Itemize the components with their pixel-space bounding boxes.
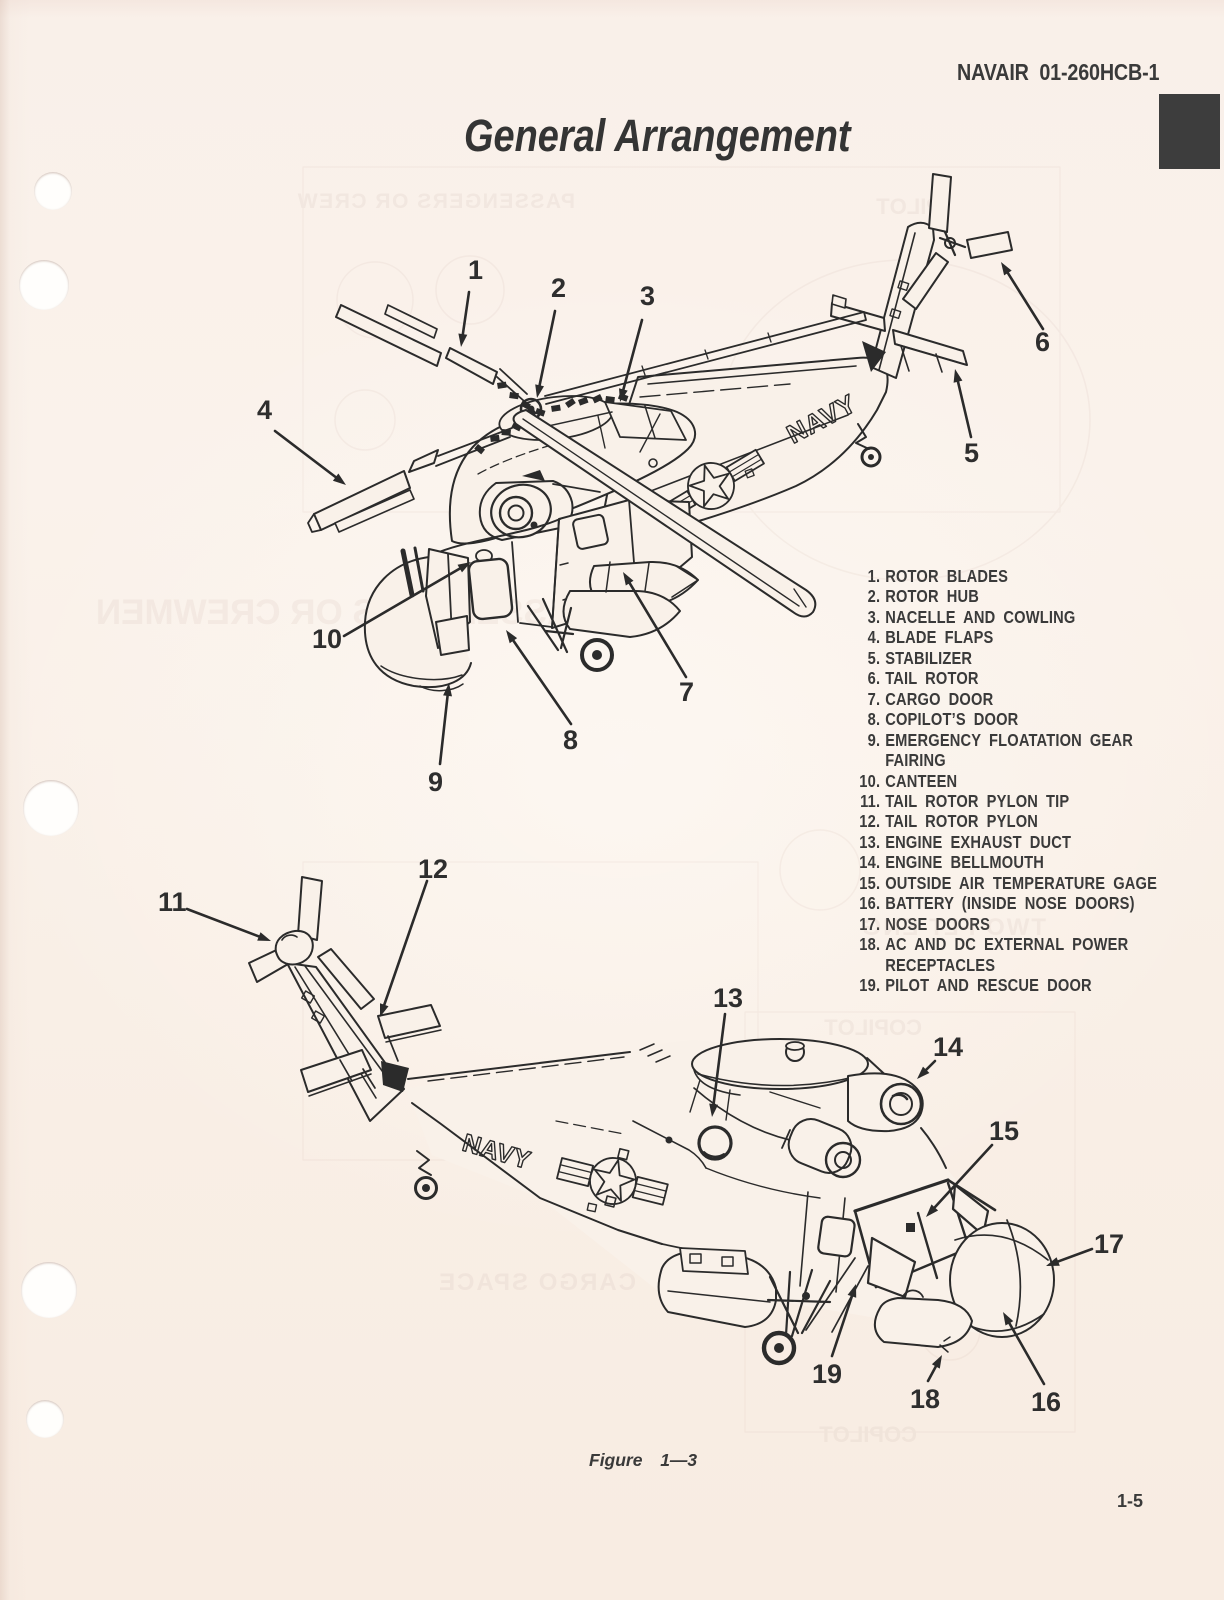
svg-text:PASSENGERS OR CREW: PASSENGERS OR CREW bbox=[296, 190, 575, 213]
svg-text:1: 1 bbox=[468, 255, 483, 285]
svg-text:13: 13 bbox=[713, 983, 743, 1013]
svg-text:5: 5 bbox=[964, 438, 979, 468]
svg-text:TWO FLT ENG: TWO FLT ENG bbox=[860, 914, 1046, 941]
svg-text:PASSENGERS OR CREWMEN: PASSENGERS OR CREWMEN bbox=[96, 593, 593, 632]
svg-text:8: 8 bbox=[563, 725, 578, 755]
svg-text:2: 2 bbox=[551, 273, 566, 303]
svg-text:7: 7 bbox=[679, 677, 694, 707]
svg-text:16: 16 bbox=[1031, 1387, 1061, 1417]
svg-text:11: 11 bbox=[158, 887, 187, 917]
svg-text:14: 14 bbox=[933, 1032, 963, 1062]
svg-text:COPILOT: COPILOT bbox=[819, 1422, 917, 1447]
svg-text:COPILOT: COPILOT bbox=[824, 1015, 922, 1040]
svg-text:18: 18 bbox=[910, 1384, 940, 1414]
svg-text:6: 6 bbox=[1035, 327, 1050, 357]
svg-text:9: 9 bbox=[428, 767, 443, 797]
svg-text:17: 17 bbox=[1094, 1229, 1124, 1259]
svg-text:CARGO SPACE: CARGO SPACE bbox=[437, 1269, 636, 1296]
svg-text:10: 10 bbox=[312, 624, 342, 654]
svg-text:4: 4 bbox=[257, 395, 272, 425]
svg-text:12: 12 bbox=[418, 854, 448, 884]
svg-text:19: 19 bbox=[812, 1359, 842, 1389]
svg-text:3: 3 bbox=[640, 281, 655, 311]
svg-text:15: 15 bbox=[989, 1116, 1019, 1146]
